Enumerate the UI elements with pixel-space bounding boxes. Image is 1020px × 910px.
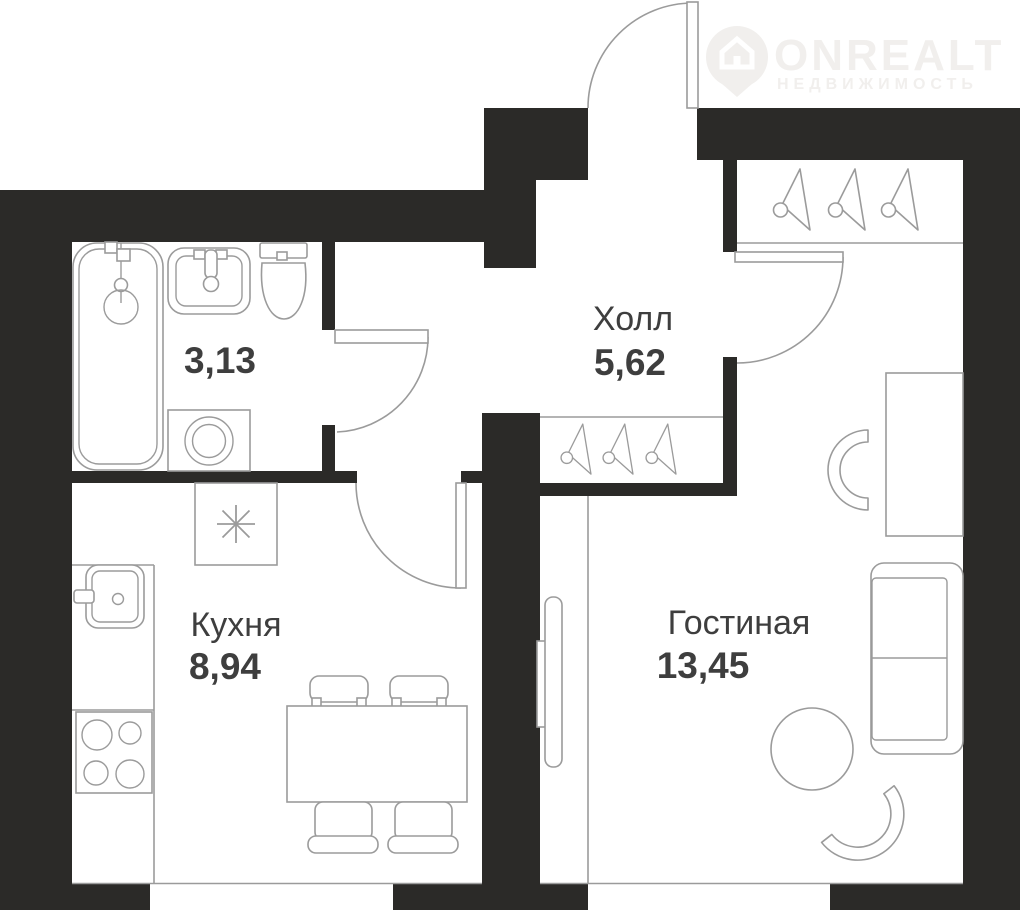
toilet: [260, 243, 307, 319]
kitchen-sink: [74, 565, 144, 628]
wall-segment: [538, 483, 737, 496]
floor-plan: ONREALT НЕДВИЖИМОСТЬ: [0, 0, 1020, 910]
hanger-icon: [646, 424, 676, 474]
wall-segment: [484, 108, 588, 180]
kitchen-name-label: Кухня: [191, 606, 282, 644]
entrance-door-leaf: [687, 2, 698, 108]
living-door: [735, 252, 843, 363]
bathroom-area-label: 3,13: [184, 340, 256, 381]
dining-table-set: [287, 676, 467, 853]
bathroom-door-leaf: [335, 330, 428, 343]
wall-segment: [0, 190, 72, 910]
wall-segment: [0, 190, 484, 242]
living-name-label: Гостиная: [668, 604, 811, 642]
chair: [395, 802, 452, 840]
wall-segment: [723, 357, 737, 496]
wall-segment: [0, 471, 357, 483]
wardrobe-hall: [561, 424, 676, 474]
kitchen-area-label: 8,94: [189, 646, 261, 687]
hanger-icon: [829, 169, 866, 230]
wall-segment: [322, 425, 335, 472]
chair-back: [308, 836, 378, 853]
living-door-leaf: [735, 252, 843, 262]
asterisk-icon: [217, 505, 255, 543]
floor-plan-page: ONREALT НЕДВИЖИМОСТЬ: [0, 0, 1020, 910]
hall-name-label: Холл: [593, 300, 673, 338]
wall-segment: [461, 471, 482, 483]
desk: [886, 373, 963, 536]
sofa: [871, 563, 963, 754]
wardrobe-top: [774, 169, 919, 230]
chair-back: [388, 836, 458, 853]
kitchen-door: [356, 483, 466, 588]
brand-subtitle: НЕДВИЖИМОСТЬ: [777, 76, 978, 93]
desk-chair: [828, 430, 868, 510]
tv: [537, 597, 562, 767]
entrance-door: [588, 2, 698, 108]
living-area-label: 13,45: [657, 645, 750, 686]
kitchen-door-leaf: [456, 483, 466, 588]
wall-segment: [322, 242, 335, 330]
chair: [315, 802, 372, 840]
brand-logo: ONREALT НЕДВИЖИМОСТЬ: [706, 26, 1004, 97]
hanger-icon: [774, 169, 811, 230]
bathroom-sink: [168, 248, 250, 314]
brand-name: ONREALT: [774, 31, 1004, 80]
wall-segment: [963, 108, 1020, 910]
hanger-icon: [882, 169, 919, 230]
hanger-icon: [561, 424, 591, 474]
hall-area-label: 5,62: [594, 342, 666, 383]
stove: [76, 712, 152, 793]
wall-segment: [723, 160, 737, 252]
bathtub: [73, 242, 163, 470]
coffee-table: [771, 708, 853, 790]
wall-segment: [482, 413, 540, 910]
hanger-icon: [603, 424, 633, 474]
dining-table: [287, 706, 467, 802]
vent-counter: [195, 483, 277, 565]
wall-segment: [830, 883, 1020, 910]
bathroom-door: [335, 330, 428, 432]
armchair: [822, 786, 923, 879]
washing-machine: [168, 410, 250, 471]
wall-segment: [484, 180, 536, 268]
kitchen-furniture: [74, 483, 467, 853]
house-pin-icon: [706, 26, 768, 97]
doors: [335, 2, 843, 588]
